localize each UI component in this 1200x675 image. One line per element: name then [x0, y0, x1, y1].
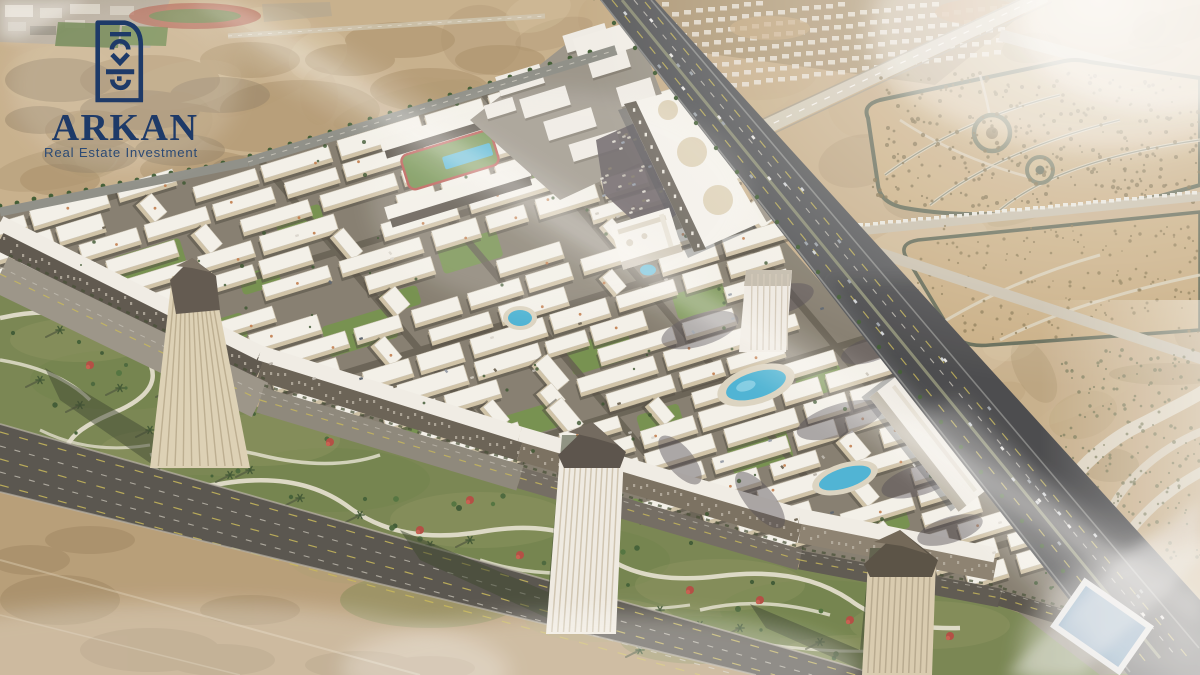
svg-text:Real Estate Investment: Real Estate Investment: [44, 145, 198, 160]
svg-text:ARKAN: ARKAN: [52, 107, 199, 149]
